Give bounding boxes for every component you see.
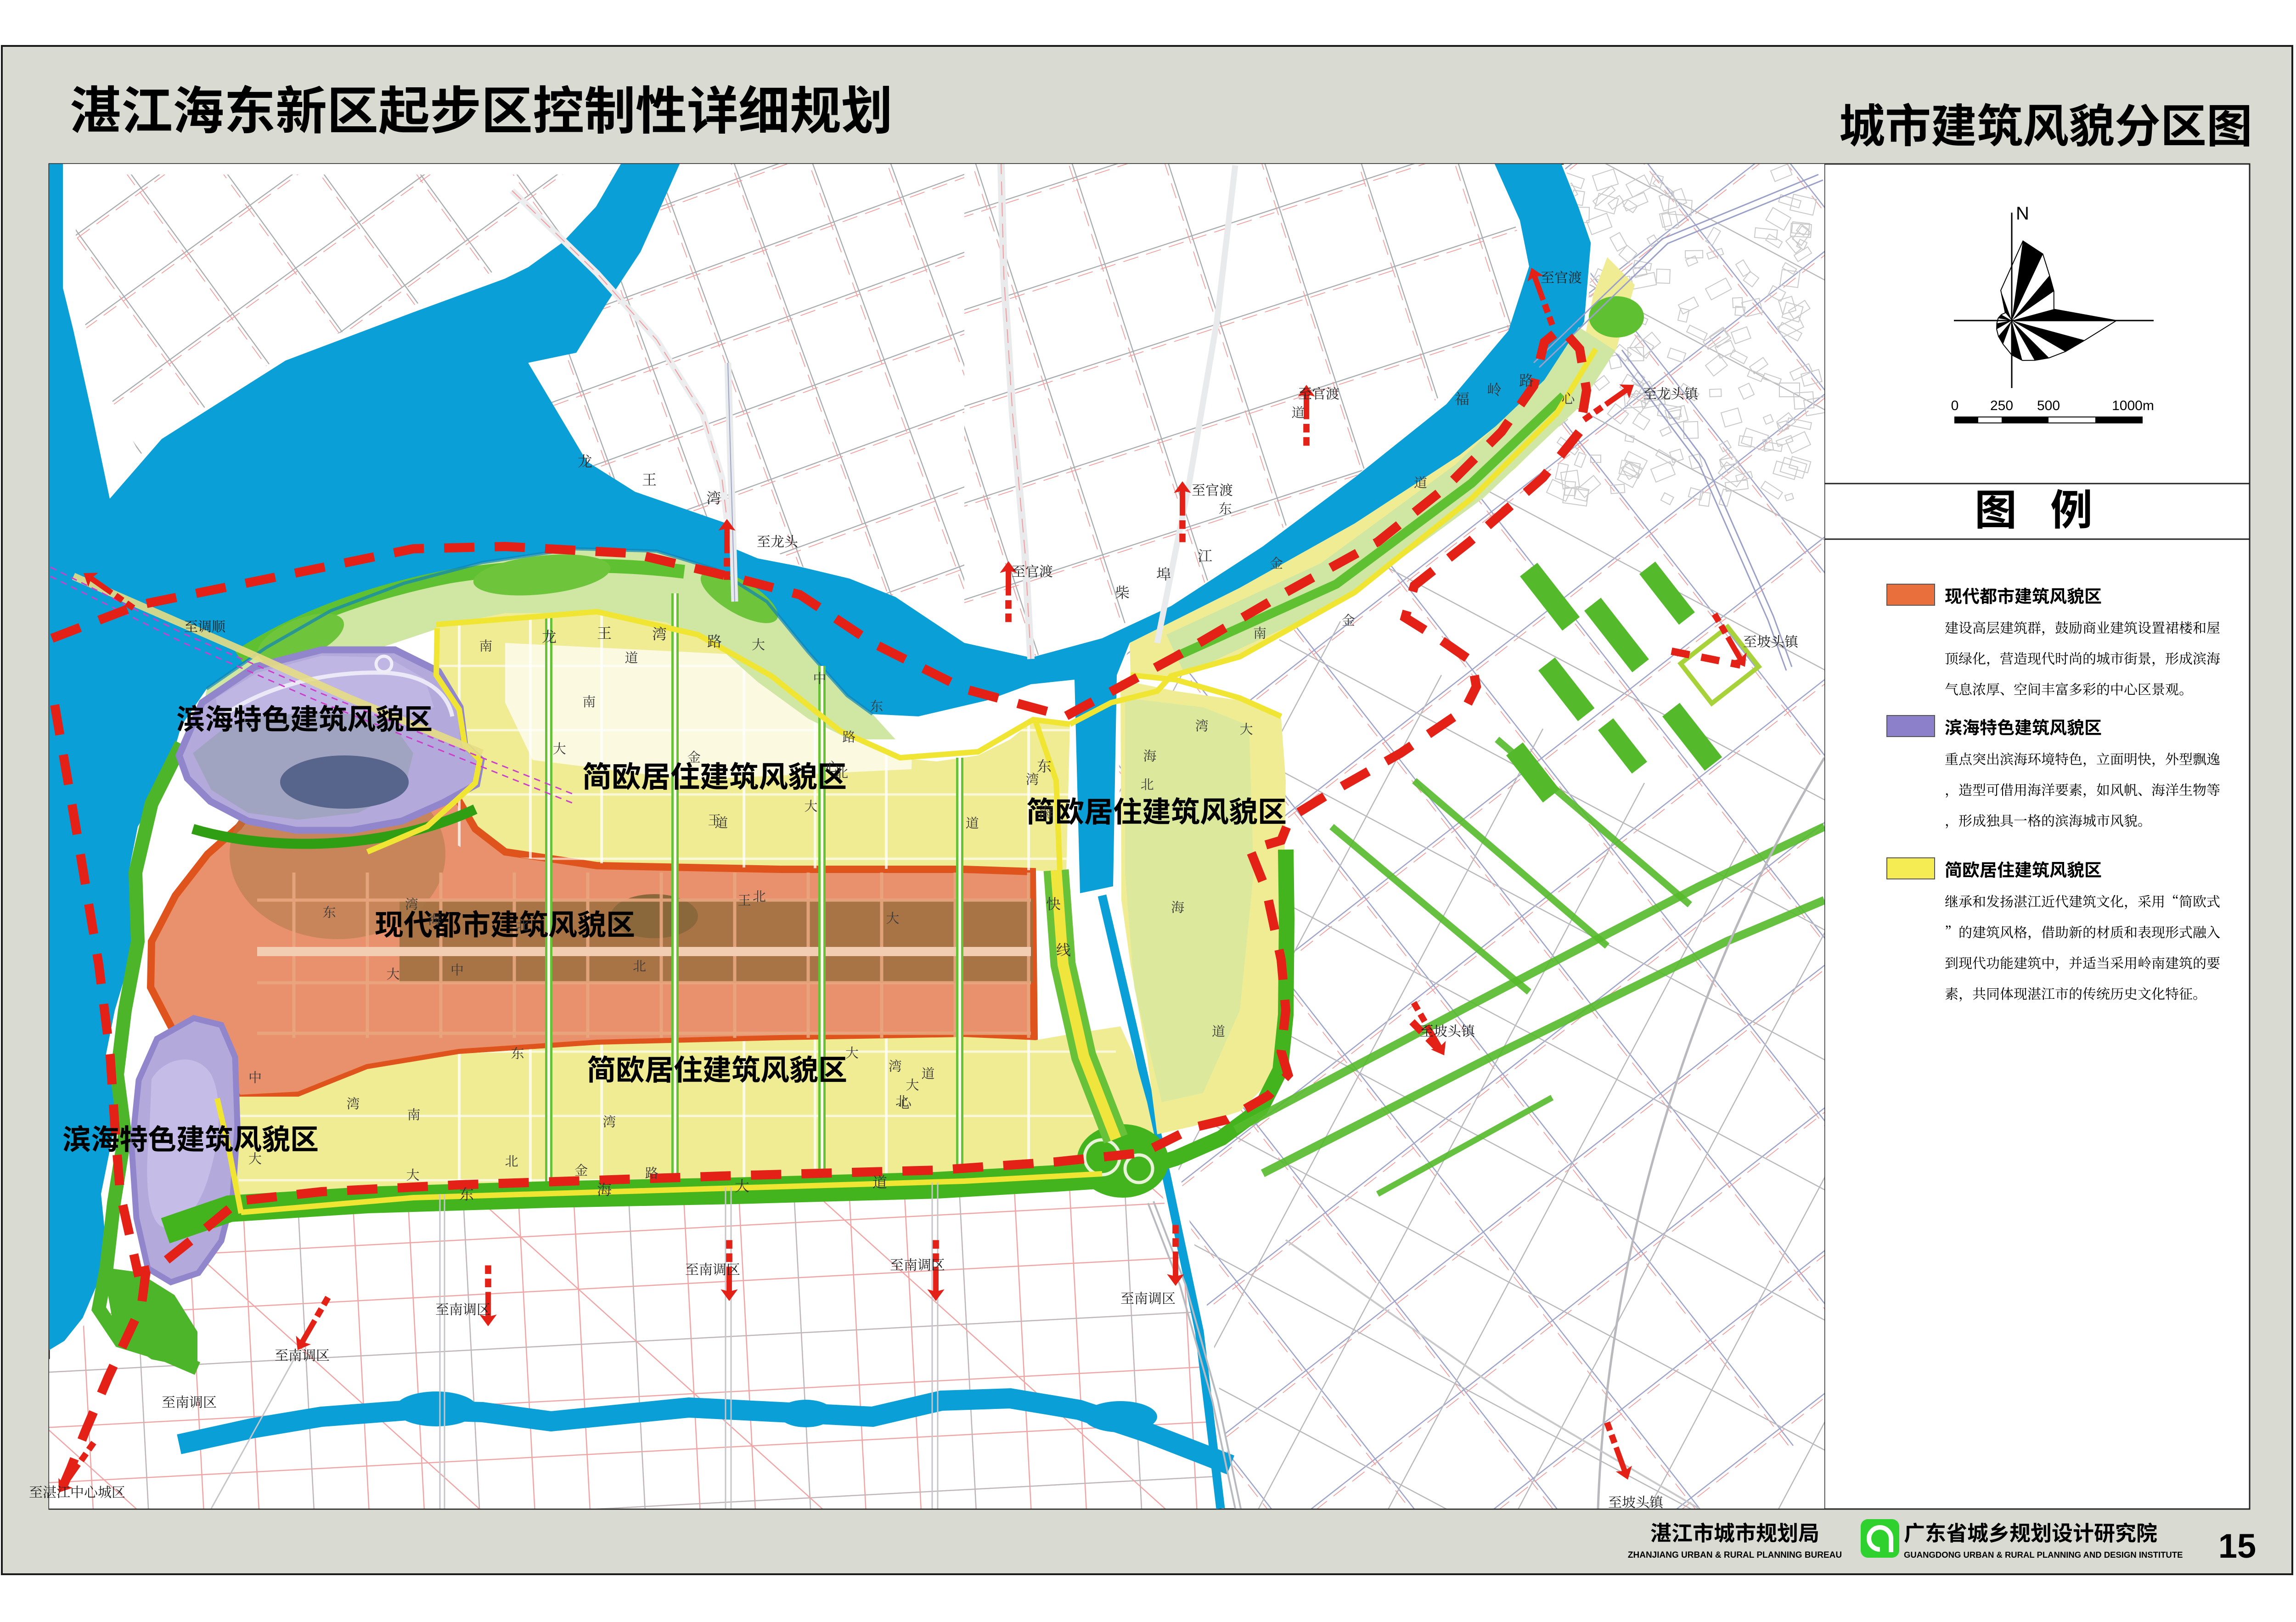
svg-text:1000m: 1000m (2112, 398, 2154, 413)
svg-text:500: 500 (2037, 398, 2060, 413)
svg-text:GUANGDONG URBAN & RURAL PLANNI: GUANGDONG URBAN & RURAL PLANNING AND DES… (1904, 1550, 2183, 1560)
svg-text:N: N (2016, 203, 2029, 224)
svg-text:15: 15 (2218, 1527, 2256, 1565)
svg-text:ZHANJIANG URBAN & RURAL PLANNI: ZHANJIANG URBAN & RURAL PLANNING BUREAU (1628, 1550, 1842, 1560)
svg-text:0: 0 (1951, 398, 1959, 413)
svg-text:250: 250 (1990, 398, 2013, 413)
